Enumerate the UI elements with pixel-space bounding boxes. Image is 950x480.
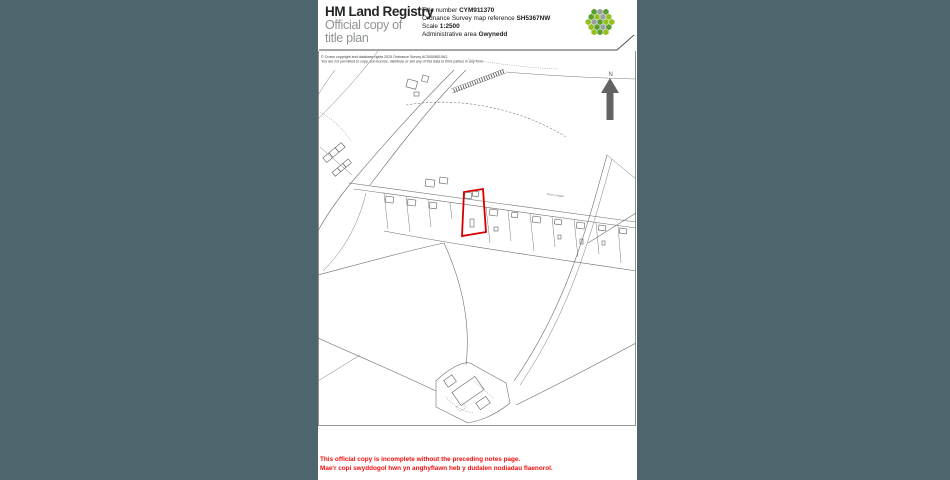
os-map-linework: Bron y Waen (318, 51, 636, 423)
admin-area-value: Gwynedd (478, 31, 507, 38)
footer-warning-welsh: Mae'r copi swyddogol hwn yn anghyflawn h… (320, 465, 553, 474)
hm-land-registry-brand: HM Land Registry (325, 4, 433, 19)
page-header: HM Land Registry Official copy of title … (318, 0, 637, 50)
farmstead (436, 363, 510, 423)
title-number-value: CYM911370 (459, 7, 494, 14)
hm-land-registry-logo-icon (584, 6, 616, 38)
terrace-buildings (320, 143, 352, 177)
railway-hatch-band (454, 71, 504, 91)
footer-warning-english: This official copy is incomplete without… (320, 456, 553, 465)
official-copy-subtitle: Official copy of title plan (325, 19, 402, 45)
footer-warning: This official copy is incomplete without… (320, 456, 553, 473)
scale-row: Scale 1:2500 (422, 23, 550, 31)
road-name-label: Bron y Waen (547, 192, 565, 198)
house-buildings (385, 177, 627, 245)
title-number-row: Title number CYM911370 (422, 7, 550, 15)
scale-value: 1:2500 (440, 23, 460, 30)
os-map-reference-row: Ordnance Survey map reference SH5367NW (422, 15, 550, 23)
map-copyright-line-1: © Crown copyright and database rights 20… (321, 55, 448, 59)
map-frame (318, 51, 635, 426)
top-buildings (406, 75, 429, 96)
title-plan-map: © Crown copyright and database rights 20… (318, 51, 636, 426)
screenshot-canvas: { "background_color": "#4d656c", "header… (0, 0, 950, 480)
admin-area-row: Administrative area Gwynedd (422, 31, 550, 39)
title-details: Title number CYM911370 Ordnance Survey m… (422, 7, 550, 39)
north-label: N (609, 72, 613, 78)
title-plan-page: HM Land Registry Official copy of title … (318, 0, 637, 480)
os-map-reference-value: SH5367NW (517, 15, 551, 22)
north-arrow-icon: N (601, 72, 619, 120)
map-copyright-line-2: You are not permitted to copy, sub-licen… (321, 60, 484, 64)
subtitle-line-2: title plan (325, 32, 402, 45)
